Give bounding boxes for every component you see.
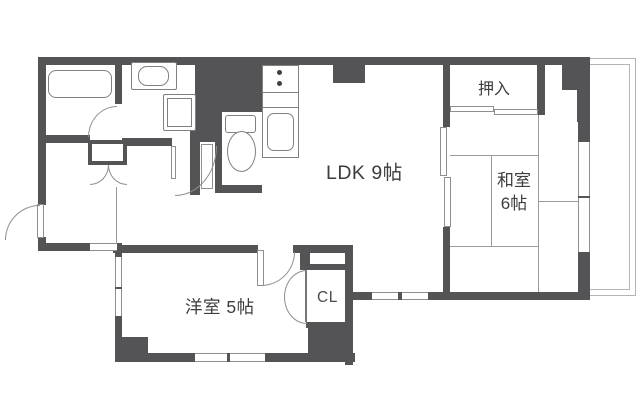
wall-bath-divider: [115, 57, 122, 104]
label-ldk: LDK 9帖: [326, 156, 403, 185]
wall-washroom-bottom: [122, 138, 172, 146]
stove-burner-dot-2: [277, 81, 282, 86]
label-closet: CL: [317, 289, 338, 307]
wall-ldk-washitsu-divider-top: [443, 65, 450, 127]
label-yoshitsu: 洋室 5帖: [185, 294, 255, 319]
kitchen-counter-line-1: [262, 92, 299, 93]
wall-above-toilet-door: [200, 112, 215, 142]
pillar-ne-corner-a: [562, 65, 590, 90]
label-washitsu-size: 6帖: [480, 192, 548, 215]
window-ldk-south-1: [372, 292, 398, 300]
pillar-kitchen-top: [333, 65, 365, 83]
duct-space-block: [195, 62, 262, 112]
oshiire-sliding-door-2: [494, 109, 538, 115]
tatami-line-h1: [450, 155, 538, 156]
floor-plan: LDK 9帖 押入 和室 6帖 洋室 5帖 CL: [0, 0, 640, 419]
pillar-cl-south: [308, 328, 346, 358]
washitsu-sliding-door-1: [440, 127, 447, 176]
wall-ldk-washitsu-divider-bottom: [443, 227, 450, 300]
entry-door-swing: [5, 205, 40, 240]
window-washitsu-east-2: [578, 198, 590, 252]
label-oshiire: 押入: [450, 75, 538, 99]
cl-door-swing-top: [284, 270, 307, 297]
wall-cl-top-bar: [306, 264, 346, 270]
shoe-cabinet-door-swing-left: [90, 165, 109, 185]
label-washitsu: 和室 6帖: [480, 169, 548, 215]
balcony-outline-inner: [590, 64, 630, 290]
shoe-cabinet: [88, 140, 127, 165]
wall-cl-right: [345, 245, 353, 365]
wall-washitsu-bottom: [443, 292, 590, 300]
window-yoshitsu-south-1: [195, 353, 227, 362]
window-yoshitsu-west-1: [115, 257, 122, 287]
cl-door-swing-bottom: [284, 297, 307, 324]
pillar-ne-corner-b: [577, 88, 590, 122]
washbasin-sink: [138, 66, 169, 86]
shoe-cabinet-door-swing-right: [108, 165, 127, 185]
wall-ldk-bottom: [353, 292, 443, 300]
kitchen-counter-line-2: [262, 107, 299, 108]
washitsu-sliding-door-2: [444, 177, 451, 227]
wall-yoshitsu-top: [113, 245, 258, 253]
window-genkan: [90, 243, 117, 251]
washing-machine-pan-inner: [167, 98, 192, 127]
oshiire-sliding-door-1: [450, 106, 494, 112]
genkan-step-line: [116, 187, 117, 244]
window-yoshitsu-south-2: [230, 353, 265, 362]
window-ldk-south-2: [402, 292, 428, 300]
bathtub: [48, 70, 112, 98]
wall-toilet-bottom: [215, 185, 262, 193]
kitchen-sink: [267, 113, 294, 151]
pillar-yoshitsu-corner: [122, 337, 148, 358]
label-washitsu-name: 和室: [480, 169, 548, 192]
window-washitsu-east-1: [578, 142, 590, 196]
wall-bath-bottom: [42, 135, 90, 143]
tatami-line-h2: [450, 246, 538, 247]
bathroom-door-swing: [88, 106, 117, 137]
wall-oshiire-right: [537, 65, 545, 115]
stove-burner-dot-1: [277, 70, 282, 75]
window-yoshitsu-west-2: [115, 289, 122, 316]
toilet-bowl: [227, 131, 256, 172]
wall-left-upper: [38, 57, 46, 205]
